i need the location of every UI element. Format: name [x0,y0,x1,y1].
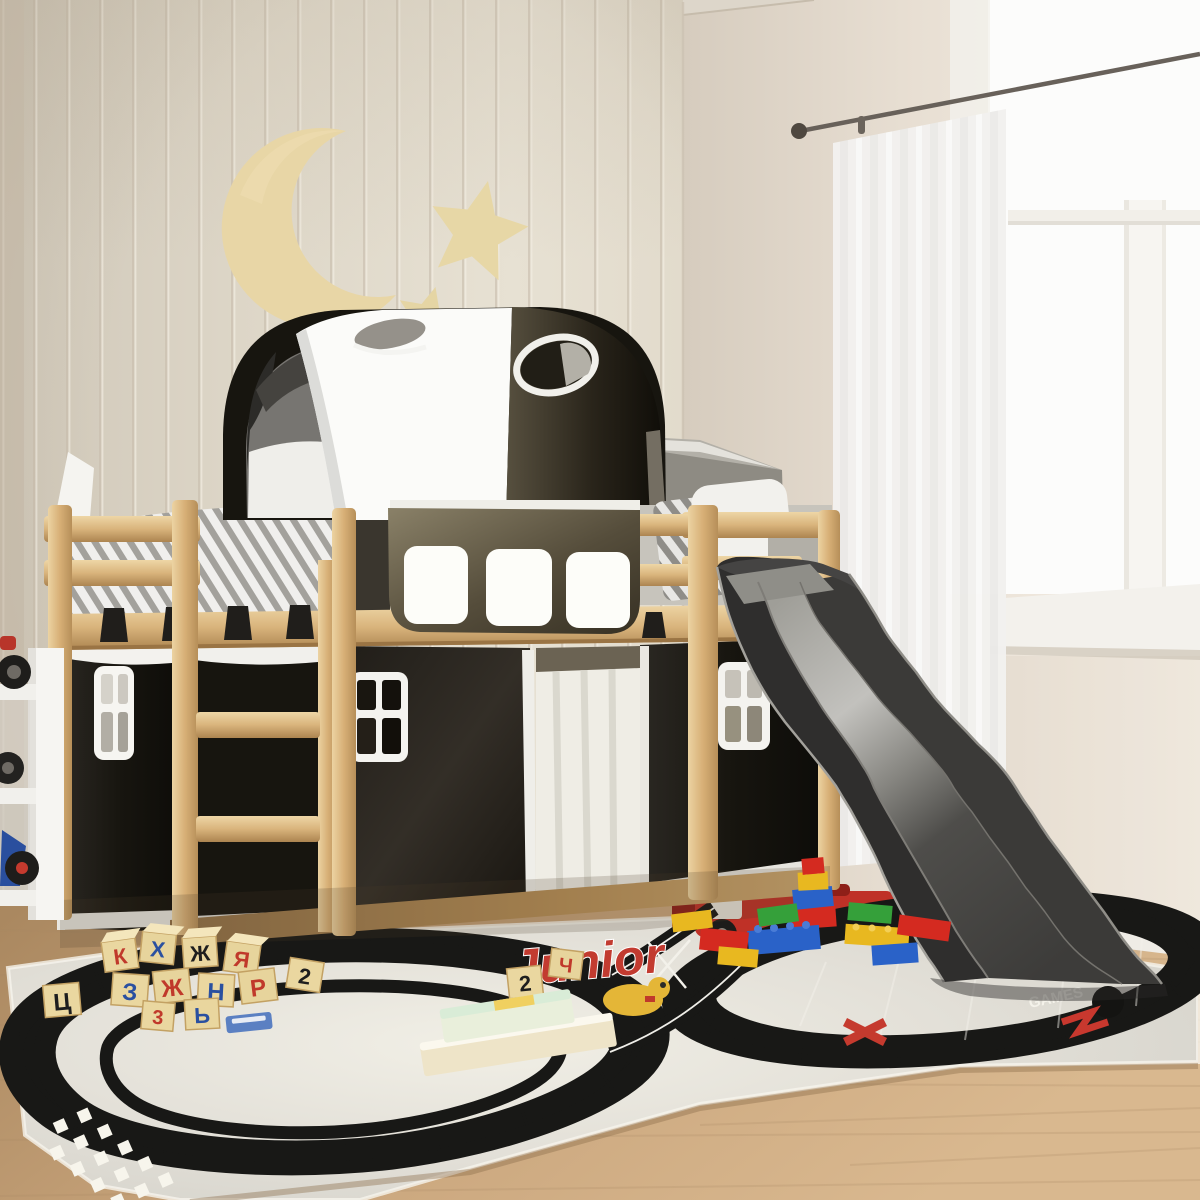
svg-text:Р: Р [249,974,268,1003]
svg-text:Ж: Ж [188,940,211,966]
svg-text:Ч: Ч [557,954,574,978]
svg-text:2: 2 [518,970,533,996]
svg-text:Ь: Ь [194,1003,211,1029]
svg-text:Ж: Ж [159,974,185,1003]
svg-text:Ц: Ц [52,988,72,1016]
svg-text:Х: Х [149,936,167,962]
svg-text:З: З [121,979,138,1007]
svg-text:3: 3 [151,1007,164,1030]
